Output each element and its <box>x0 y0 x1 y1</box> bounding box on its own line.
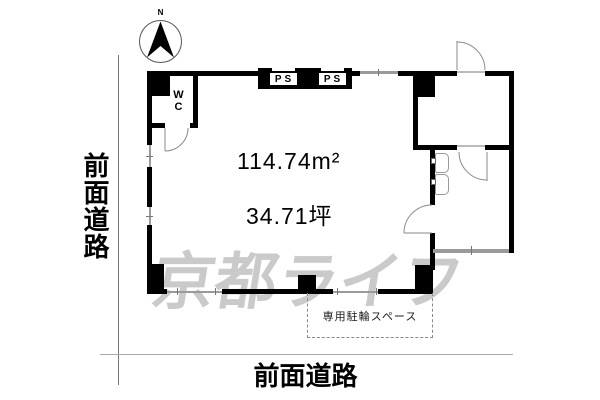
door-swing-kitchen-icon <box>404 205 432 233</box>
area-tsubo: 34.71坪 <box>246 197 333 231</box>
ps-box-1: PS <box>268 71 299 87</box>
wc-label: WC <box>172 89 186 113</box>
ps-label: PS <box>275 74 294 85</box>
bicycle-space-label: 専用駐輪スペース <box>308 308 432 324</box>
door-swing-inner-icon <box>459 152 487 181</box>
floor-plan-image: 京都ライフ PS <box>0 0 600 400</box>
door-swing-wc-icon <box>165 128 188 151</box>
ps-box-2: PS <box>317 71 348 87</box>
bicycle-space-zone: 専用駐輪スペース <box>307 293 433 338</box>
north-arrow-icon <box>140 21 182 63</box>
road-label-bottom: 前面道路 <box>248 356 363 393</box>
door-swing-entrance-icon <box>457 41 485 70</box>
area-square-meters: 114.74m² <box>237 148 340 175</box>
ps-label: PS <box>324 74 343 85</box>
north-label: N <box>148 8 173 17</box>
road-label-left: 前面道路 <box>82 152 108 260</box>
